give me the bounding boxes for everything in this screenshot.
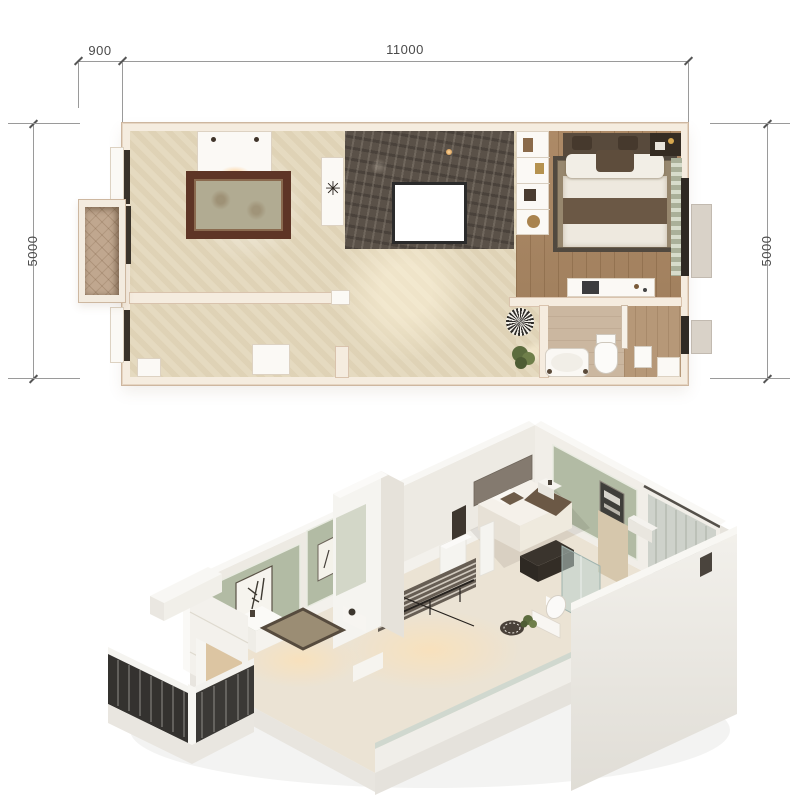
desk-item: [643, 288, 647, 292]
starburst-decor: ✳: [322, 179, 344, 201]
desk-item: [634, 284, 639, 289]
sofa-knob: [211, 137, 216, 142]
cabinet: [252, 344, 290, 375]
window-sill-right: [691, 320, 712, 354]
plant-leaf: [515, 357, 527, 369]
shelf-item: [523, 138, 533, 152]
shelf-unit: [516, 131, 549, 235]
tub-fitting: [547, 369, 552, 374]
shelf-divider: [517, 157, 550, 158]
shelf-divider: [517, 183, 550, 184]
shelf-item: [535, 163, 544, 174]
floor-plan-figure: 900 11000 5000 5000: [0, 0, 800, 800]
bed-throw-blanket: [563, 198, 667, 224]
ceiling-light: [446, 149, 452, 155]
dim-extension: [8, 123, 80, 124]
dim-tick: [29, 374, 38, 383]
bathroom-divider: [622, 306, 627, 348]
partition-wall: [130, 293, 348, 303]
dim-extension: [122, 62, 123, 122]
round-dotted-rug: [506, 308, 534, 336]
tub-fitting: [583, 369, 588, 374]
corner-post: [188, 684, 196, 752]
towel-stand: [634, 346, 652, 368]
iso-stair-wall: [333, 471, 404, 649]
small-art-frame: [318, 537, 334, 581]
bedroom-desk: [567, 278, 655, 297]
dim-line-top: [78, 61, 689, 62]
nightstand-item: [655, 142, 665, 150]
wall-stub: [336, 347, 348, 377]
void-opening: [392, 182, 467, 244]
bathtub: [545, 348, 589, 377]
shelf-item: [527, 215, 540, 228]
balcony: [78, 199, 126, 303]
dim-label-5000-left: 5000: [26, 231, 40, 271]
bathroom-wall: [510, 298, 681, 306]
nightstand: [650, 133, 681, 156]
toilet: [594, 342, 618, 374]
corner-box: [137, 358, 161, 377]
dim-label-11000: 11000: [355, 43, 455, 57]
sofa-knob: [254, 137, 259, 142]
bedroom-window: [681, 178, 689, 276]
window-sill-right: [691, 204, 712, 278]
plan-outline: ✳: [122, 123, 688, 385]
window-sill-left: [110, 307, 124, 363]
wall-pillar: [331, 290, 350, 305]
dim-extension: [710, 378, 790, 379]
accent-pillow: [596, 150, 634, 172]
stair-wall-panel: [336, 504, 366, 596]
isometric-view: [0, 400, 800, 800]
floor-plan-2d: 900 11000 5000 5000: [0, 0, 800, 412]
iso-round-rug: [500, 621, 524, 636]
window-sill-left: [110, 147, 124, 206]
dim-extension: [710, 123, 790, 124]
dim-tick: [763, 374, 772, 383]
dim-extension: [8, 378, 80, 379]
dark-pillow: [618, 136, 638, 150]
bathroom-window: [681, 316, 689, 354]
dim-extension: [688, 62, 689, 122]
tub-basin: [551, 353, 583, 372]
balcony-tile: [85, 207, 119, 295]
bath-mat: [657, 357, 680, 377]
dim-extension: [78, 62, 79, 108]
dim-label-900: 900: [78, 44, 122, 58]
shelf-item: [524, 189, 536, 201]
ornate-rug: [186, 171, 291, 239]
laptop: [582, 281, 599, 294]
lamp: [668, 138, 674, 144]
dark-pillow: [572, 136, 592, 150]
vase: [349, 609, 356, 616]
dim-label-5000-right: 5000: [760, 231, 774, 271]
shelf-divider: [517, 209, 550, 210]
